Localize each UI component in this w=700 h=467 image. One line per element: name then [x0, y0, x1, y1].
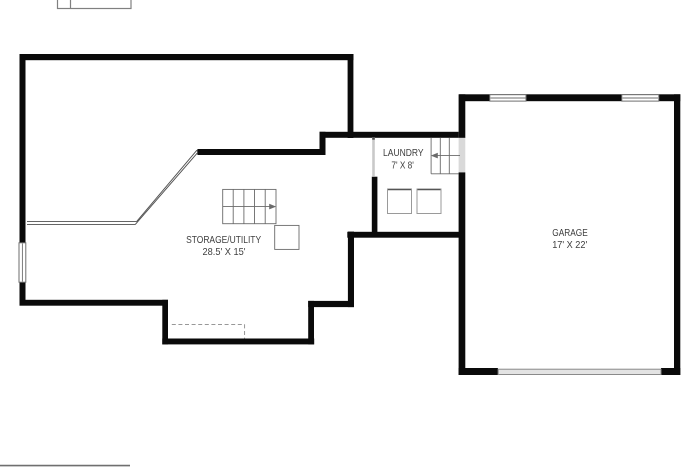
- svg-text:LAUNDRY: LAUNDRY: [383, 148, 424, 159]
- svg-text:7' X 8': 7' X 8': [391, 161, 414, 172]
- svg-text:GARAGE: GARAGE: [552, 228, 588, 239]
- svg-text:STORAGE/UTILITY: STORAGE/UTILITY: [186, 235, 261, 246]
- svg-text:17' X 22': 17' X 22': [552, 240, 587, 251]
- svg-text:28.5' X 15': 28.5' X 15': [203, 247, 246, 258]
